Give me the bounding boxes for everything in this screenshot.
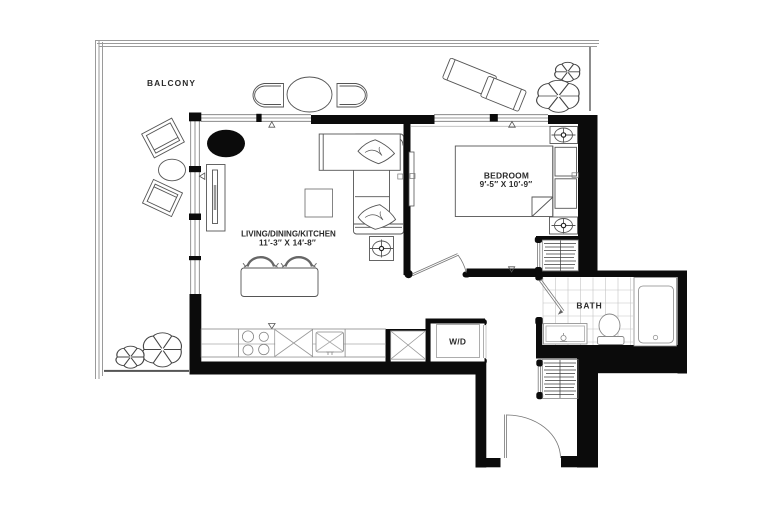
svg-text:W/D: W/D [449,337,466,347]
svg-text:11′-3″ X 14′-8″: 11′-3″ X 14′-8″ [259,238,316,247]
svg-text:LIVING/DINING/KITCHEN: LIVING/DINING/KITCHEN [241,230,336,239]
svg-text:BALCONY: BALCONY [147,78,196,88]
svg-text:BATH: BATH [576,301,602,311]
svg-text:9′-5″ X 10′-9″: 9′-5″ X 10′-9″ [480,180,533,189]
